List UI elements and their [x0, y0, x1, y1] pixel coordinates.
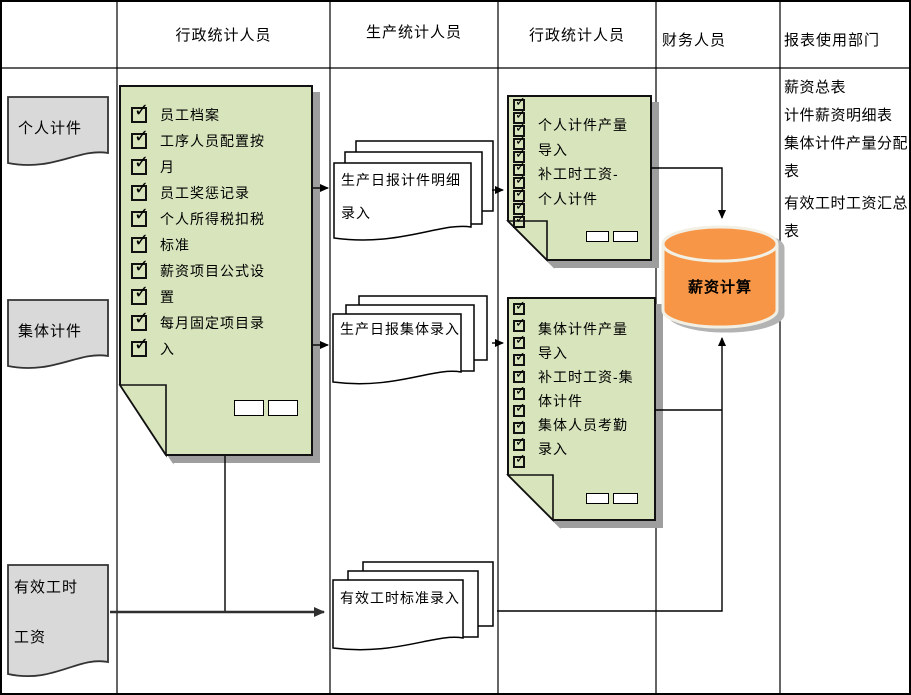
checklist-line: 补工时工资-	[538, 162, 628, 187]
checklist-line: 导入	[538, 138, 628, 163]
note-button-blank	[613, 493, 638, 504]
checklist-line: 体计件	[538, 389, 634, 413]
checklist-row: ✓月	[131, 154, 265, 180]
checklist-row: ✓每月固定项目录	[131, 310, 265, 336]
checkbox-checked-icon: ✓	[131, 263, 147, 279]
checkbox-checked-icon: ✓	[513, 320, 525, 332]
report-item: 薪资总表	[784, 74, 910, 102]
checkbox-checked-icon: ✓	[131, 289, 147, 305]
checklist-line: 录入	[538, 437, 634, 461]
checkbox-checked-icon: ✓	[513, 439, 525, 451]
lane-header-label: 财务人员	[662, 29, 726, 50]
checkbox-checked-icon: ✓	[131, 159, 147, 175]
lane-header-admin-stat-2: 行政统计人员	[498, 0, 656, 68]
doc-label-line: 生产日报计件明细	[341, 170, 461, 190]
lane-header-label: 行政统计人员	[175, 24, 271, 45]
checkbox-checked-icon: ✓	[513, 337, 525, 349]
daily-collective-doc-label: 生产日报集体录入	[340, 319, 460, 339]
row-label-personal-piecework: 个人计件	[18, 117, 82, 138]
checklist-row: ✓入	[131, 336, 265, 362]
lane-header-label: 行政统计人员	[529, 24, 625, 45]
lane-header-report-users: 报表使用部门	[784, 8, 911, 70]
row-label-line: 工资	[14, 613, 78, 663]
row-label-line: 有效工时	[14, 563, 78, 613]
note-button-blank	[234, 400, 264, 416]
checkbox-checked-icon: ✓	[131, 185, 147, 201]
checkbox-checked-icon: ✓	[513, 456, 525, 468]
note-button-blank	[586, 231, 609, 242]
checkbox-checked-icon: ✓	[131, 107, 147, 123]
report-item: 集体计件产量分配表	[784, 130, 910, 186]
checkbox-checked-icon: ✓	[513, 405, 525, 417]
checkbox-checked-icon: ✓	[513, 216, 525, 228]
checklist-row: ✓标准	[131, 232, 265, 258]
lane-header-label: 报表使用部门	[784, 29, 880, 50]
checklist-line: 个人计件	[538, 187, 628, 212]
checklist-row: ✓薪资项目公式设	[131, 258, 265, 284]
checklist-row: ✓员工档案	[131, 102, 265, 128]
personal-import-checklist: 个人计件产量 导入 补工时工资- 个人计件	[538, 113, 628, 211]
collective-import-checkbox-column: ✓ ✓ ✓ ✓ ✓ ✓ ✓ ✓ ✓ ✓	[513, 303, 525, 468]
lane-header-label: 生产统计人员	[366, 21, 462, 42]
report-item: 有效工时工资汇总表	[784, 190, 910, 246]
checklist-line: 补工时工资-集	[538, 365, 634, 389]
admin-master-checklist: ✓员工档案 ✓工序人员配置按 ✓月 ✓员工奖惩记录 ✓个人所得税扣税 ✓标准 ✓…	[131, 102, 265, 362]
checklist-row: ✓工序人员配置按	[131, 128, 265, 154]
checkbox-checked-icon: ✓	[131, 341, 147, 357]
checkbox-checked-icon: ✓	[131, 315, 147, 331]
checkbox-checked-icon: ✓	[131, 211, 147, 227]
checklist-line: 导入	[538, 341, 634, 365]
note-button-blank	[613, 231, 638, 242]
salary-calc-cylinder-label: 薪资计算	[663, 276, 777, 297]
checkbox-checked-icon: ✓	[513, 354, 525, 366]
personal-import-checkbox-column: ✓ ✓ ✓ ✓ ✓ ✓ ✓ ✓ ✓ ✓	[513, 99, 525, 228]
collective-import-checklist: 集体计件产量 导入 补工时工资-集 体计件 集体人员考勤 录入	[538, 317, 634, 461]
checkbox-checked-icon: ✓	[131, 133, 147, 149]
checkbox-checked-icon: ✓	[131, 237, 147, 253]
flowchart-canvas: 行政统计人员 生产统计人员 行政统计人员 财务人员 报表使用部门 个人计件 集体…	[0, 0, 911, 695]
checklist-line: 集体计件产量	[538, 317, 634, 341]
checkbox-checked-icon: ✓	[513, 422, 525, 434]
daily-collective-multidoc-shape	[333, 296, 487, 384]
note-button-blank	[586, 493, 609, 504]
checkbox-checked-icon: ✓	[513, 303, 525, 315]
hour-standard-doc-label: 有效工时标准录入	[340, 588, 460, 608]
lane-header-finance: 财务人员	[662, 8, 780, 70]
lane-header-admin-stat-1: 行政统计人员	[117, 0, 330, 68]
note-button-blank	[268, 400, 298, 416]
checklist-row: ✓置	[131, 284, 265, 310]
daily-piecework-doc-label: 生产日报计件明细 录入	[341, 170, 461, 223]
checkbox-checked-icon: ✓	[513, 388, 525, 400]
checklist-line: 集体人员考勤	[538, 413, 634, 437]
report-list: 薪资总表 计件薪资明细表 集体计件产量分配表 有效工时工资汇总表	[784, 74, 910, 246]
doc-label-line: 录入	[341, 203, 461, 223]
checklist-row: ✓员工奖惩记录	[131, 180, 265, 206]
checklist-row: ✓个人所得税扣税	[131, 206, 265, 232]
row-label-collective-piecework: 集体计件	[18, 320, 82, 341]
lane-header-production-stat: 生产统计人员	[330, 0, 498, 62]
checkbox-checked-icon: ✓	[513, 371, 525, 383]
report-item: 计件薪资明细表	[784, 102, 910, 130]
row-label-effective-hours: 有效工时 工资	[14, 563, 78, 663]
checklist-line: 个人计件产量	[538, 113, 628, 138]
